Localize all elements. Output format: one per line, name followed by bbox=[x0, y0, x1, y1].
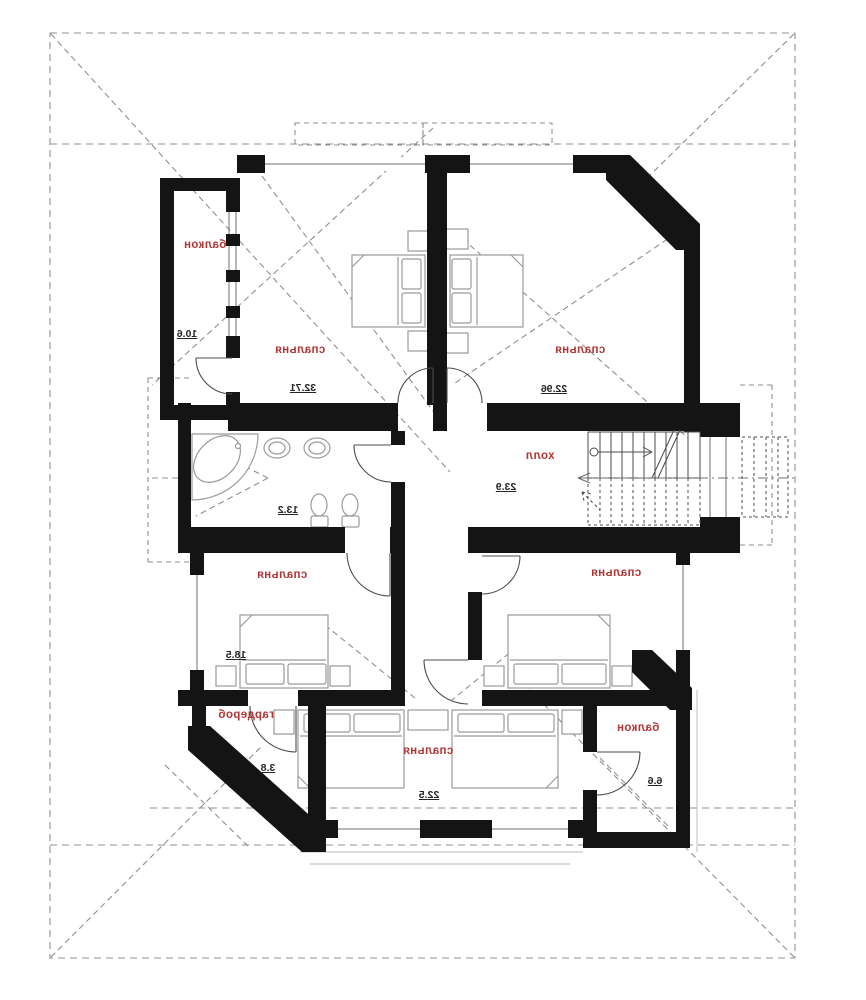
toilet bbox=[342, 494, 359, 527]
room-area-bathroom: 13.2 bbox=[278, 504, 298, 516]
chamfer-wall-top-right bbox=[606, 155, 700, 250]
door-balcony-top bbox=[196, 358, 232, 394]
room-area-balcony-bottom: 6.6 bbox=[648, 775, 663, 787]
floor-plan: балкон 10.6 спальня 32.71 спальня 22.96 … bbox=[0, 0, 866, 1000]
room-area-bedroom-mid-left: 18.5 bbox=[226, 649, 246, 661]
room-label-bedroom-mid-left: спальня bbox=[257, 569, 308, 581]
toilet bbox=[311, 494, 328, 527]
dormer-outline-left bbox=[295, 123, 423, 145]
bed-mid-right bbox=[484, 615, 632, 688]
bathroom-fixtures bbox=[184, 426, 359, 527]
bed-top-left bbox=[352, 231, 430, 351]
bed-bottom-right bbox=[452, 710, 582, 788]
door-bedroom-mid-left bbox=[347, 553, 390, 596]
bed-top-right bbox=[446, 229, 523, 353]
window-hall-right bbox=[704, 437, 736, 517]
room-area-bedroom-top-right: 22.96 bbox=[541, 383, 567, 395]
staircase bbox=[578, 430, 795, 525]
plan-canvas bbox=[0, 0, 866, 1000]
dormer-outline-right bbox=[423, 123, 552, 145]
room-label-bedroom-bottom: спальня bbox=[403, 745, 454, 757]
door-bedroom-mid-right bbox=[482, 556, 520, 594]
room-label-balcony-top: балкон bbox=[184, 239, 227, 251]
door-bedroom-top-right bbox=[447, 368, 482, 403]
room-label-wardrobe: гардероб bbox=[218, 709, 274, 721]
room-area-bedroom-bottom: 22.5 bbox=[419, 789, 439, 801]
sink bbox=[304, 438, 330, 458]
door-balcony-bottom bbox=[597, 752, 640, 795]
door-bathroom bbox=[354, 445, 391, 482]
room-area-balcony-top: 10.6 bbox=[177, 328, 197, 340]
sink bbox=[264, 438, 290, 458]
staircase-lower-flight bbox=[582, 437, 788, 525]
room-label-bedroom-mid-right: спальня bbox=[591, 567, 642, 579]
room-label-bedroom-top-right: спальня bbox=[555, 344, 606, 356]
room-label-balcony-bottom: балкон bbox=[617, 722, 660, 734]
door-bedroom-bottom bbox=[424, 660, 468, 704]
room-area-wardrobe: 3.8 bbox=[261, 762, 276, 774]
room-area-bedroom-top-left: 32.71 bbox=[290, 382, 316, 394]
room-label-bedroom-top-left: спальня bbox=[275, 344, 326, 356]
room-area-hall: 23.9 bbox=[496, 481, 516, 493]
room-label-hall: холл bbox=[525, 450, 554, 462]
